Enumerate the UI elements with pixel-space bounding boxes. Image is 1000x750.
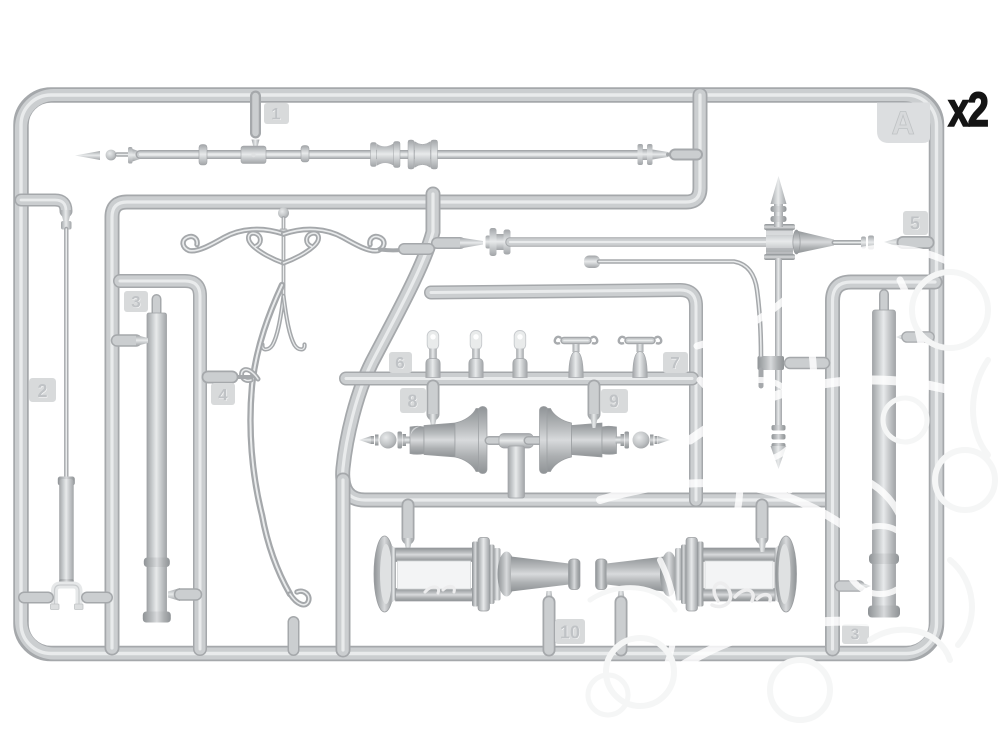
svg-text:9: 9 — [609, 391, 619, 411]
svg-text:4: 4 — [218, 385, 228, 404]
svg-text:A: A — [891, 105, 914, 141]
svg-text:6: 6 — [395, 353, 404, 372]
svg-text:2: 2 — [37, 381, 47, 401]
svg-text:3: 3 — [851, 626, 860, 643]
svg-text:7: 7 — [670, 353, 679, 372]
svg-text:8: 8 — [407, 391, 417, 411]
svg-text:5: 5 — [910, 213, 920, 233]
svg-text:3: 3 — [131, 292, 140, 311]
svg-text:x2: x2 — [948, 84, 988, 137]
svg-text:1: 1 — [271, 104, 280, 123]
svg-text:10: 10 — [560, 622, 580, 642]
